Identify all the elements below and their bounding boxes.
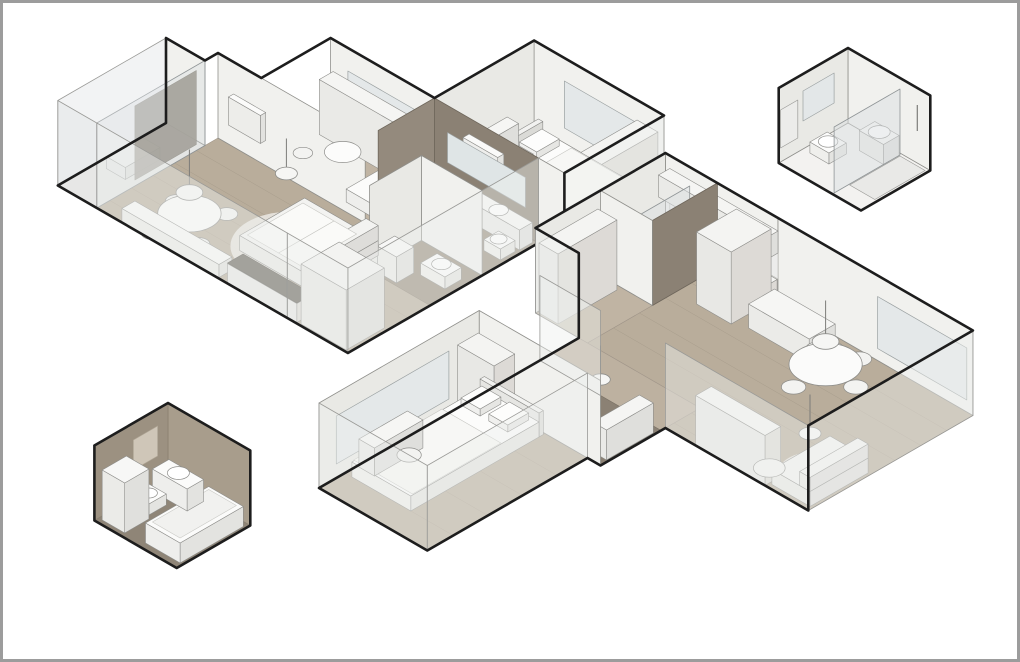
a2-pendant-lamp	[812, 334, 839, 350]
drawing-frame	[0, 0, 1020, 662]
a1-pendant-lamp	[275, 167, 297, 180]
a1-radiator	[260, 113, 265, 144]
a1-kid-table	[324, 141, 361, 162]
isometric-floor-plan	[3, 3, 1017, 659]
d2-sink-basin	[167, 467, 189, 480]
a1-kid-chair	[293, 147, 313, 158]
a2-dining-chair	[781, 380, 805, 394]
